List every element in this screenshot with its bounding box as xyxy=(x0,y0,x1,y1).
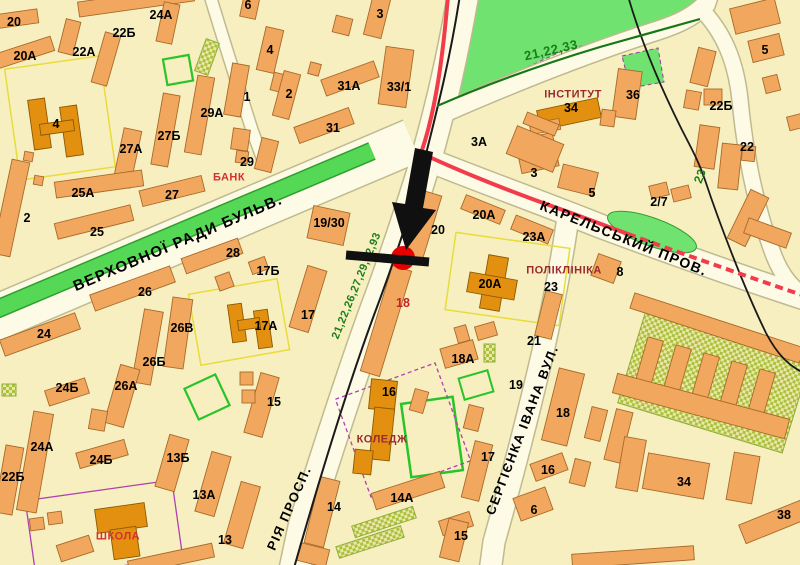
building xyxy=(308,62,322,76)
building xyxy=(23,151,33,161)
building xyxy=(235,150,249,164)
hatched-area xyxy=(2,384,16,396)
public-building xyxy=(369,379,398,412)
building xyxy=(33,175,43,185)
public-building xyxy=(110,526,140,559)
building xyxy=(718,143,743,190)
building xyxy=(88,409,107,431)
map-base-layer xyxy=(0,0,800,565)
building xyxy=(741,145,755,161)
building xyxy=(600,109,616,127)
building xyxy=(684,90,702,110)
public-building xyxy=(353,449,373,475)
building xyxy=(307,206,350,246)
building xyxy=(332,15,353,36)
building xyxy=(231,128,251,151)
building xyxy=(762,74,780,93)
building xyxy=(29,517,45,531)
map-canvas[interactable]: ВЕРХОВНОЇ РАДИ БУЛЬВ.КАРЕЛЬСЬКИЙ ПРОВ.СЕ… xyxy=(0,0,800,565)
building xyxy=(704,89,722,105)
hatched-area xyxy=(484,344,495,362)
building xyxy=(240,372,253,385)
building xyxy=(47,511,63,525)
building xyxy=(242,390,255,403)
